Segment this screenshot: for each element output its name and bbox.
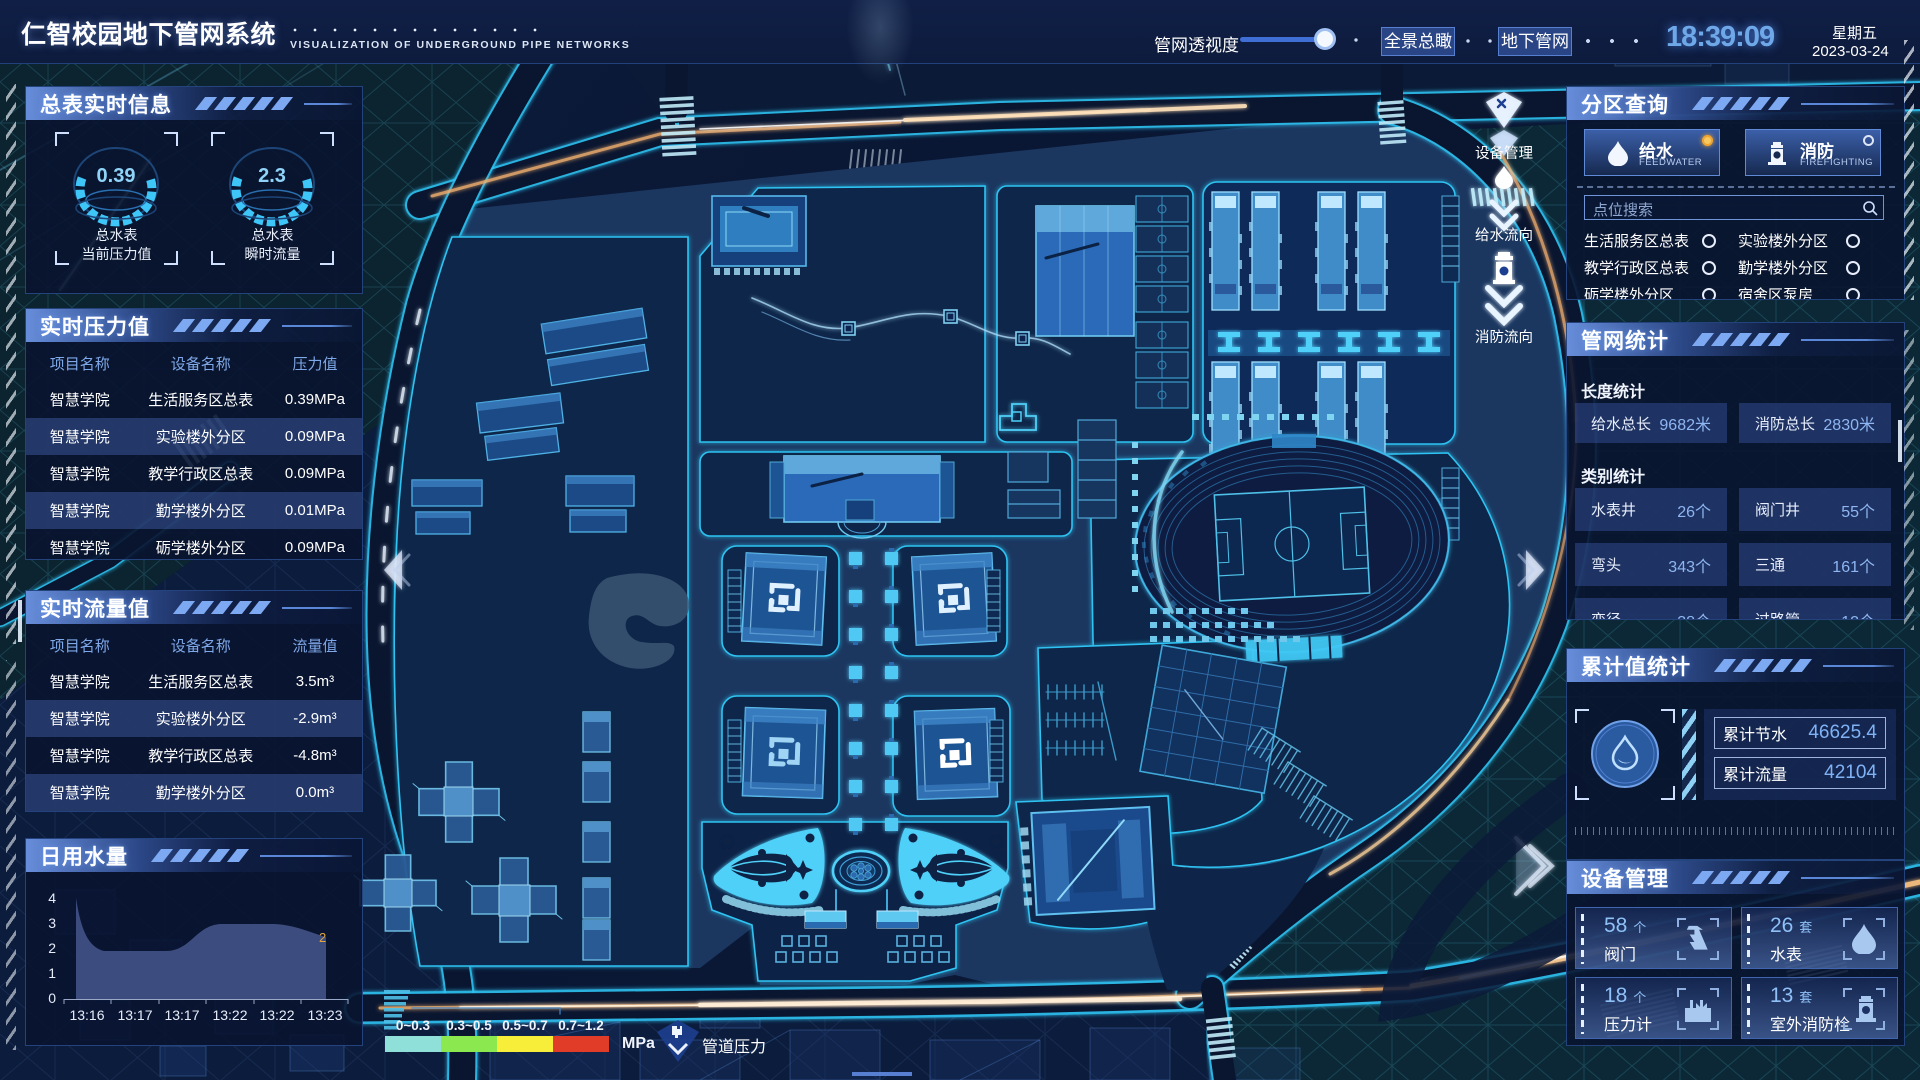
svg-text:设备管理: 设备管理 — [1475, 145, 1533, 162]
svg-text:2.3: 2.3 — [258, 165, 286, 187]
svg-text:4: 4 — [48, 890, 56, 906]
svg-text:3: 3 — [48, 915, 56, 931]
svg-text:13:22: 13:22 — [212, 1007, 247, 1023]
svg-text:13:17: 13:17 — [164, 1007, 199, 1023]
svg-text:2: 2 — [319, 930, 326, 945]
svg-text:0: 0 — [48, 990, 56, 1006]
svg-text:消防流向: 消防流向 — [1475, 329, 1533, 346]
svg-text:2: 2 — [48, 940, 56, 956]
svg-text:给水流向: 给水流向 — [1475, 227, 1533, 244]
svg-text:13:17: 13:17 — [117, 1007, 152, 1023]
svg-text:13:23: 13:23 — [307, 1007, 342, 1023]
svg-text:13:16: 13:16 — [69, 1007, 104, 1023]
svg-text:13:22: 13:22 — [259, 1007, 294, 1023]
svg-text:0.39: 0.39 — [97, 165, 136, 187]
svg-text:1: 1 — [48, 965, 56, 981]
